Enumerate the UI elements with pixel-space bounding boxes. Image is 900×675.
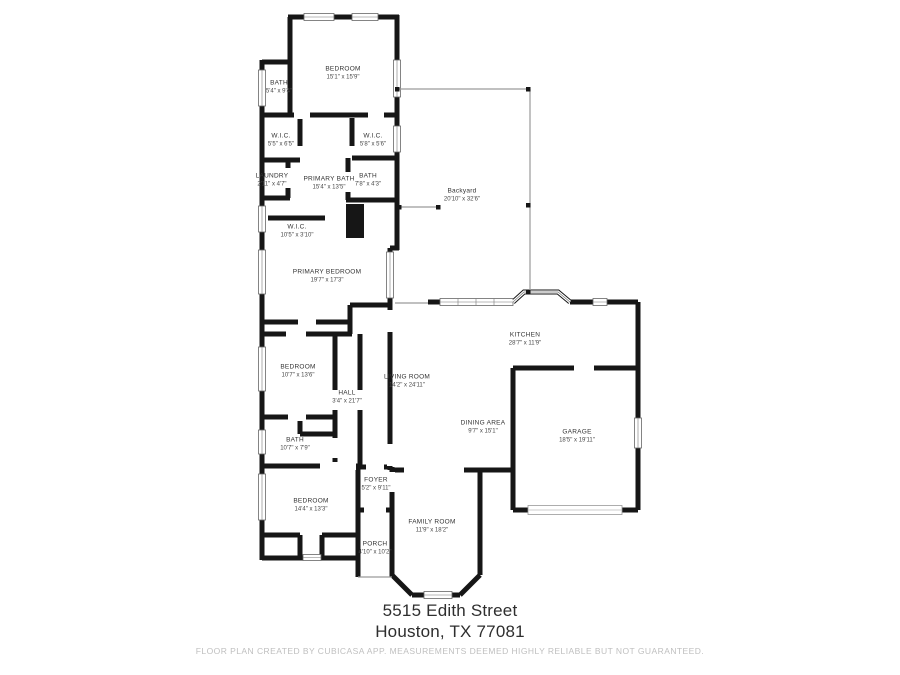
- address-block: 5515 Edith Street Houston, TX 77081: [0, 600, 900, 642]
- floorplan-drawing: [0, 0, 900, 675]
- address-line2: Houston, TX 77081: [0, 621, 900, 642]
- door-openings: [285, 111, 594, 514]
- disclaimer-text: FLOOR PLAN CREATED BY CUBICASA APP. MEAS…: [0, 646, 900, 656]
- address-line1: 5515 Edith Street: [0, 600, 900, 621]
- garage-door: [528, 506, 622, 515]
- column-block: [346, 204, 364, 238]
- floorplan-page: BEDROOM15'1" x 15'9"BATH5'4" x 9'4"W.I.C…: [0, 0, 900, 675]
- fence-posts: [395, 87, 531, 295]
- backyard-boundary: [358, 89, 530, 577]
